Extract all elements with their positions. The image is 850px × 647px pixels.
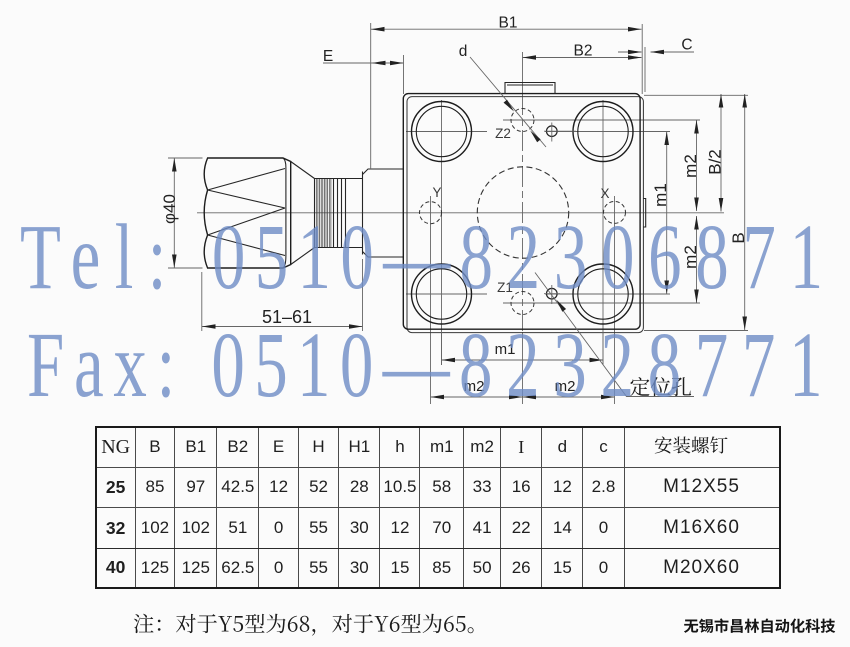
- svg-text:Y: Y: [432, 185, 441, 200]
- svg-text:B2: B2: [574, 43, 593, 60]
- svg-text:X: X: [600, 186, 609, 201]
- svg-text:Tel: 0510—82306871: Tel: 0510—82306871: [20, 205, 837, 308]
- svg-text:m1: m1: [651, 183, 670, 207]
- svg-text:Fax: 0510—82328771: Fax: 0510—82328771: [27, 313, 836, 416]
- svg-text:B1: B1: [499, 15, 518, 32]
- svg-text:B/2: B/2: [706, 149, 725, 175]
- svg-text:d: d: [459, 43, 468, 60]
- svg-text:E: E: [323, 48, 333, 65]
- svg-text:Z2: Z2: [495, 126, 511, 141]
- svg-text:m2: m2: [681, 154, 700, 178]
- svg-text:C: C: [681, 37, 692, 54]
